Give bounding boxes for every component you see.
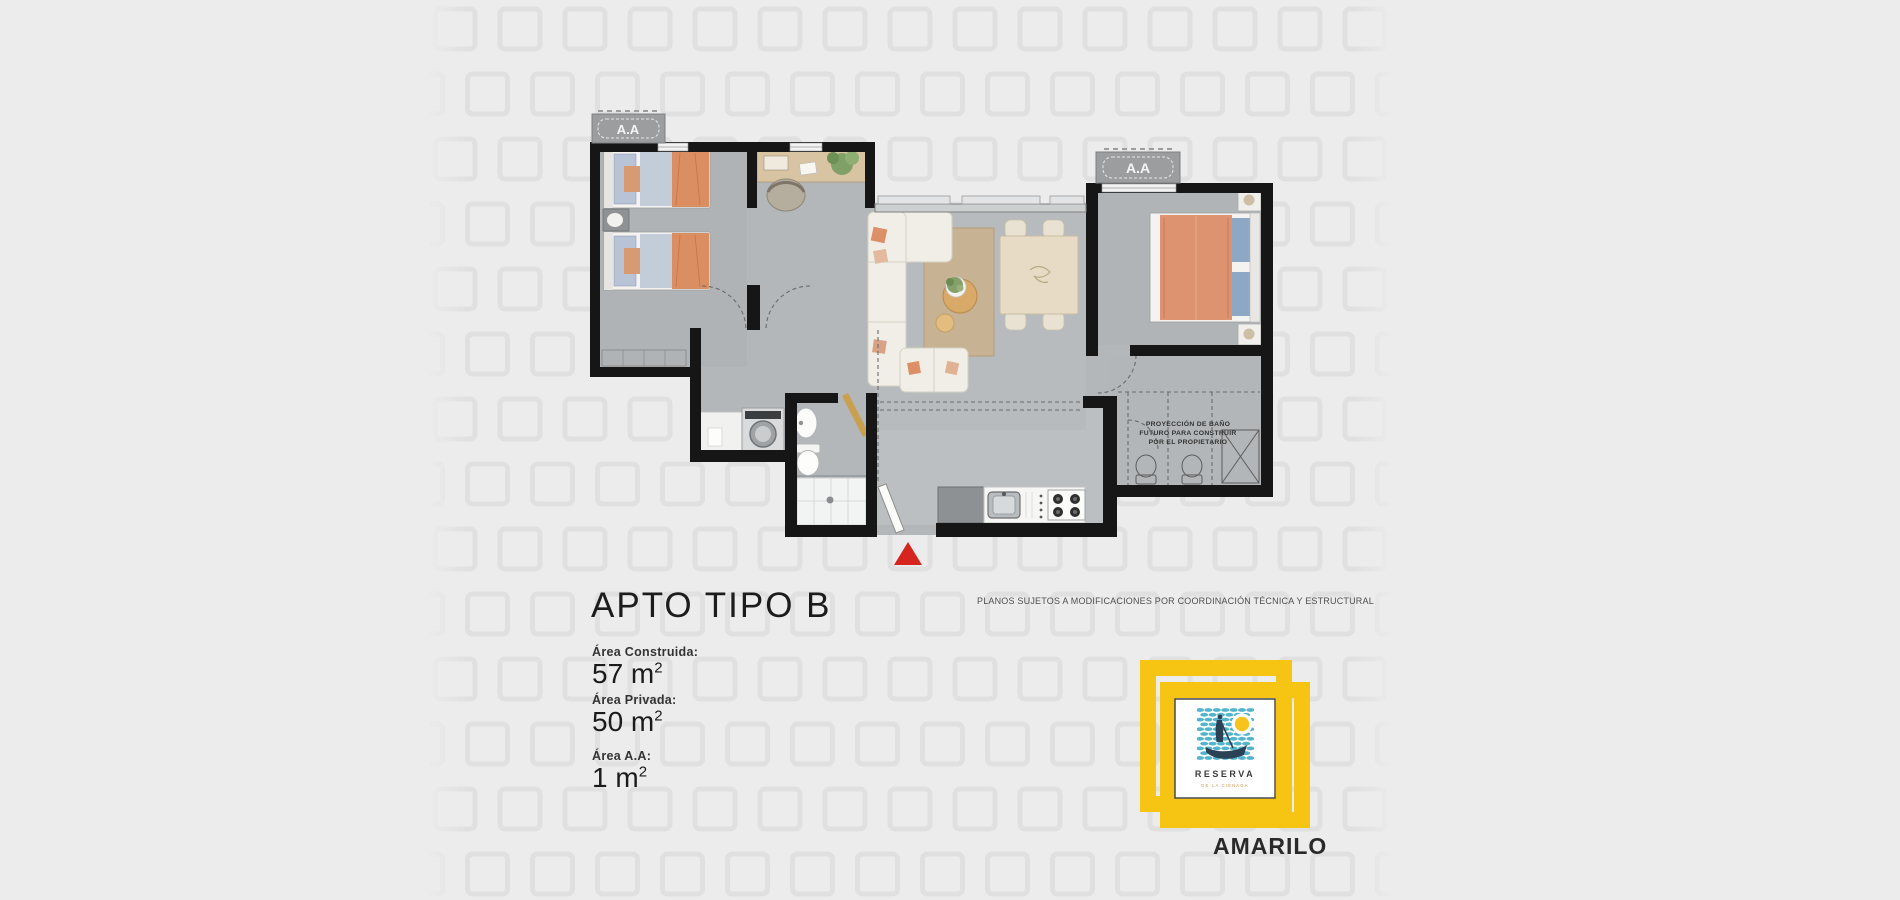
area-privada-group: Área Privada: 50 m2	[592, 693, 852, 736]
svg-text:PROYECCIÓN DE BAÑO: PROYECCIÓN DE BAÑO	[1146, 419, 1230, 428]
ac-label-left: A.A	[617, 122, 640, 137]
kitchen-cabinet	[938, 487, 984, 523]
logo: RESERVA DE LA CIÉNAGA	[1148, 668, 1302, 820]
desk-chair	[767, 179, 805, 211]
bathroom-sink	[795, 408, 817, 438]
double-bed	[1150, 213, 1260, 322]
toilet	[796, 444, 820, 476]
svg-text:FUTURO PARA CONSTRUIR: FUTURO PARA CONSTRUIR	[1139, 430, 1236, 437]
area-aa-group: Área A.A: 1 m2	[592, 749, 852, 792]
window-wall	[875, 196, 1086, 212]
area-construida-value: 57 m2	[592, 660, 852, 688]
area-aa-value: 1 m2	[592, 764, 852, 792]
logo-subtitle: DE LA CIÉNAGA	[1201, 783, 1248, 788]
area-aa-label: Área A.A:	[592, 749, 852, 763]
nightstand-left	[603, 209, 629, 231]
area-privada-label: Área Privada:	[592, 693, 852, 707]
shower-drain	[827, 497, 834, 504]
twin-bed-bottom	[604, 232, 710, 290]
disclaimer-text: PLANOS SUJETOS A MODIFICACIONES POR COOR…	[977, 596, 1337, 606]
sun-icon	[1235, 717, 1249, 731]
nightstand-right-bottom	[1238, 324, 1261, 345]
projection-note: PROYECCIÓN DE BAÑO FUTURO PARA CONSTRUIR…	[1139, 419, 1236, 446]
brand-wordmark: AMARILO	[1213, 833, 1327, 860]
ac-label-right: A.A	[1126, 160, 1150, 176]
area-construida-group: Área Construida: 57 m2	[592, 645, 852, 688]
dining-set	[1000, 220, 1078, 330]
loveseat	[900, 348, 968, 392]
stove	[1048, 490, 1085, 520]
area-privada-value: 50 m2	[592, 708, 852, 736]
floorplan-marketing-page: { "background": { "color": "#ececec", "p…	[0, 0, 1900, 900]
twin-bed-top	[604, 150, 710, 208]
kitchen	[938, 487, 1085, 523]
nightstand-right-top	[1238, 190, 1261, 211]
area-construida-label: Área Construida:	[592, 645, 852, 659]
page-title: APTO TIPO B	[591, 586, 832, 626]
svg-text:POR EL PROPIETARIO: POR EL PROPIETARIO	[1149, 439, 1228, 446]
laundry-counter	[700, 412, 742, 452]
desk	[757, 150, 868, 182]
logo-name: RESERVA	[1195, 769, 1255, 779]
washing-machine	[742, 408, 784, 452]
ac-unit-right: A.A	[1096, 149, 1180, 183]
floor-plan-canvas: PROYECCIÓN DE BAÑO FUTURO PARA CONSTRUIR…	[0, 0, 1900, 900]
ac-unit-left: A.A	[592, 111, 665, 143]
